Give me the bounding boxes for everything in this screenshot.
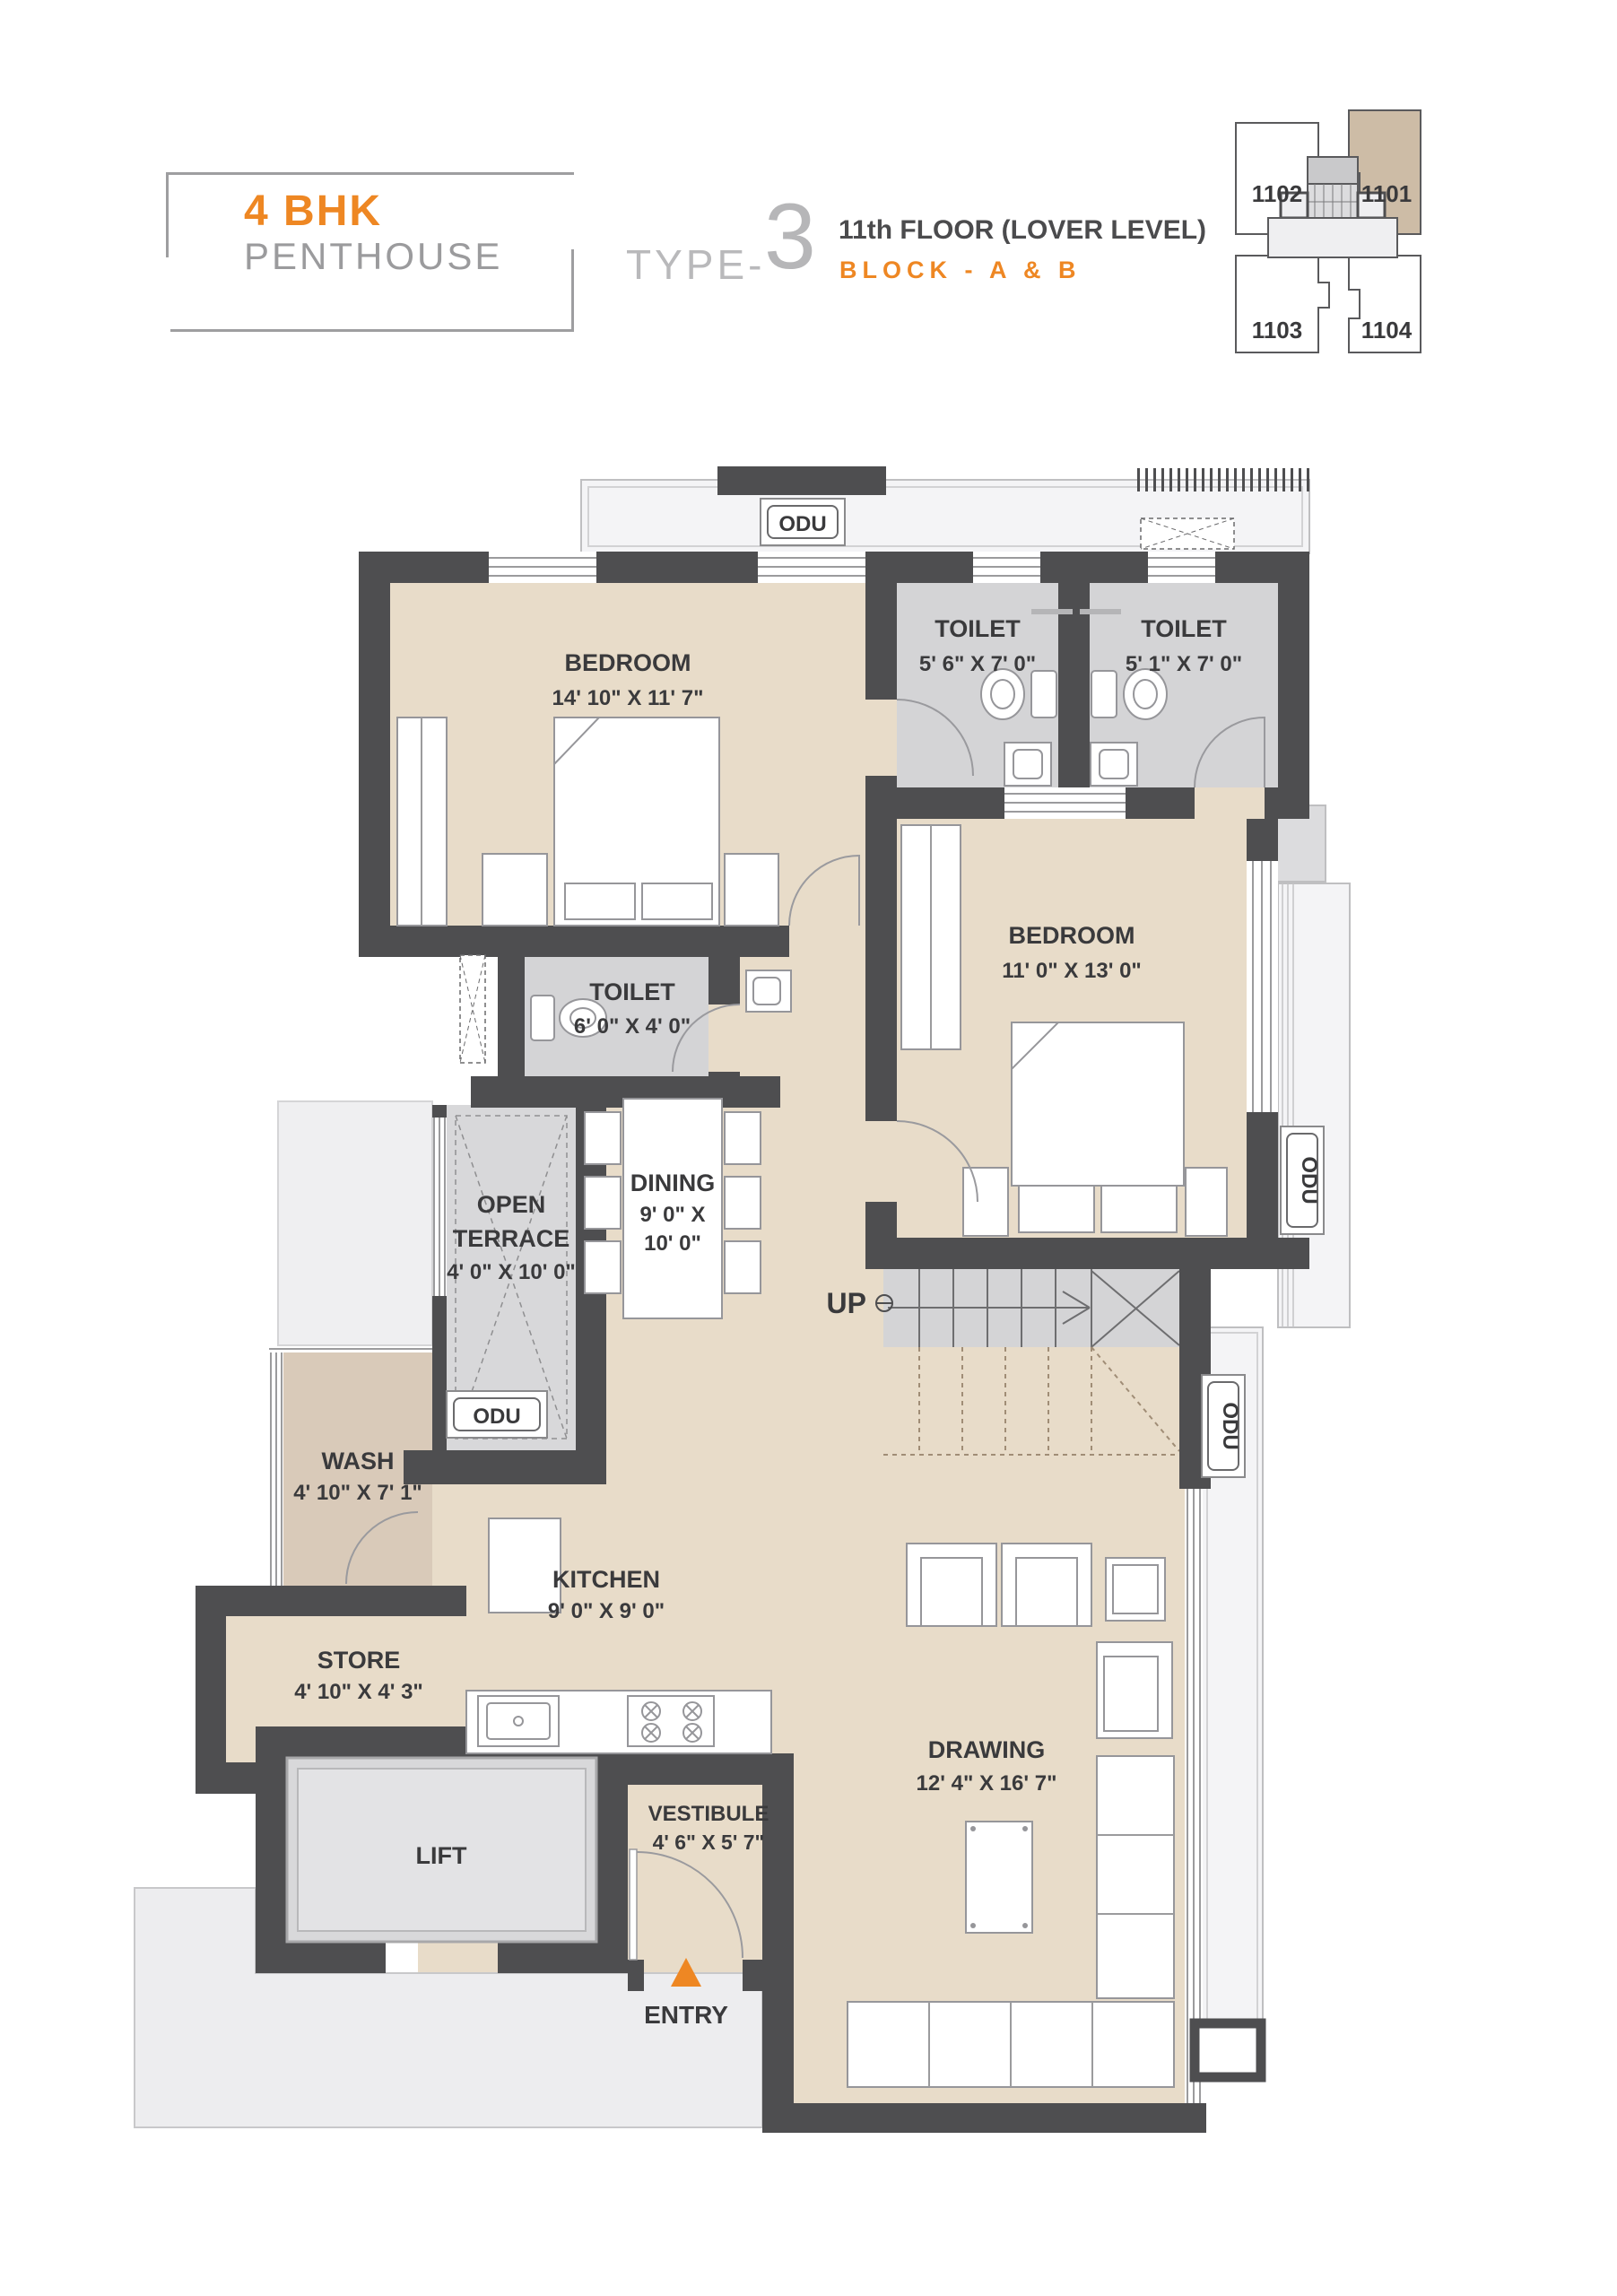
toilet1-dims: 5' 6" X 7' 0": [919, 652, 1036, 676]
store-dims: 4' 10" X 4' 3": [294, 1680, 423, 1704]
key-landing: [1268, 218, 1397, 257]
terrace-name-1: OPEN: [477, 1191, 546, 1218]
odu-top: ODU: [761, 499, 845, 545]
window-bedroom2-top: [1004, 787, 1126, 819]
wc-toilet1: [981, 669, 1056, 719]
vestibule-name: VESTIBULE: [648, 1802, 769, 1826]
toilet3-dims: 6' 0" X 4' 0": [574, 1014, 691, 1039]
odu-platform: [1195, 2023, 1261, 2077]
nightstand-right-bedroom1: [725, 854, 778, 926]
bedroom2-name: BEDROOM: [1009, 922, 1135, 949]
key-core-stair-lines: [1308, 184, 1358, 220]
vestibule-dims: 4' 6" X 5' 7": [653, 1831, 765, 1854]
window-bedroom1-balcony: [758, 552, 865, 583]
odu-terrace: ODU: [447, 1391, 547, 1438]
key-label-1104: 1104: [1361, 317, 1413, 344]
key-plan: 1102 1101 1103 1104: [1236, 110, 1421, 352]
key-core-upper: [1308, 157, 1358, 184]
window-drawing-right: [1185, 1489, 1203, 2103]
svg-text:ODU: ODU: [778, 512, 826, 536]
floor-plan-page: 4 BHK PENTHOUSE TYPE- 3 11th FLOOR (LOVE…: [0, 0, 1617, 2296]
sofa-right: [1097, 1756, 1174, 1998]
toilet1-name: TOILET: [935, 615, 1021, 642]
toilet3-name: TOILET: [589, 978, 675, 1005]
window-bedroom2-right: [1247, 861, 1278, 1112]
balcony-duct-box: [1141, 518, 1234, 549]
drawing-dims: 12' 4" X 16' 7": [917, 1771, 1057, 1796]
nightstand-left-bedroom1: [482, 854, 547, 926]
terrace-railing: [434, 1118, 445, 1296]
bedroom1-name: BEDROOM: [565, 649, 691, 676]
svg-text:ODU: ODU: [473, 1405, 520, 1429]
kitchen-name: KITCHEN: [552, 1566, 660, 1593]
dining-name: DINING: [630, 1170, 716, 1196]
coffee-table: [966, 1822, 1032, 1933]
odu-right-upper: ODU: [1281, 1126, 1324, 1234]
svg-text:ODU: ODU: [1218, 1402, 1242, 1449]
wc-toilet2: [1091, 669, 1167, 719]
bedroom1-dims: 14' 10" X 11' 7": [552, 686, 704, 710]
entry-door-leaf: [630, 1849, 637, 1960]
nightstand-right-bedroom2: [1186, 1168, 1227, 1236]
terrace-name-2: TERRACE: [453, 1225, 570, 1252]
bed-bedroom2: [1012, 1022, 1184, 1186]
terrace-dims: 4' 0" X 10' 0": [447, 1260, 576, 1284]
kitchen-dims: 9' 0" X 9' 0": [548, 1599, 665, 1623]
key-label-1102: 1102: [1252, 180, 1302, 207]
kitchen-counter: [466, 1691, 771, 1753]
dining-dims-1: 9' 0" X: [639, 1203, 705, 1227]
window-toilet1: [973, 552, 1040, 583]
bedroom2-dims: 11' 0" X 13' 0": [1002, 959, 1142, 983]
wash-dims: 4' 10" X 7' 1": [293, 1481, 422, 1505]
drawing-name: DRAWING: [928, 1736, 1046, 1763]
toilet2-name: TOILET: [1141, 615, 1227, 642]
entry-label: ENTRY: [644, 2001, 728, 2029]
window-bedroom1-top: [489, 552, 596, 583]
duct-box: [460, 955, 485, 1063]
up-label: UP: [827, 1287, 866, 1319]
floor-plan-svg: 1102 1101 1103 1104: [0, 0, 1617, 2296]
key-label-1101: 1101: [1361, 180, 1412, 207]
bedroom1-door-floor: [780, 926, 865, 957]
svg-text:ODU: ODU: [1297, 1156, 1321, 1204]
key-label-1103: 1103: [1252, 317, 1302, 344]
lift-name: LIFT: [416, 1842, 467, 1869]
side-slab: [278, 1101, 432, 1345]
window-toilet2: [1148, 552, 1215, 583]
top-balcony-wall: [717, 466, 886, 495]
odu-right-lower: ODU: [1202, 1375, 1245, 1477]
dining-dims-2: 10' 0": [644, 1231, 701, 1256]
store-name: STORE: [317, 1647, 401, 1674]
toilet2-dims: 5' 1" X 7' 0": [1126, 652, 1242, 676]
nightstand-left-bedroom2: [963, 1168, 1008, 1236]
wash-name: WASH: [322, 1448, 395, 1474]
